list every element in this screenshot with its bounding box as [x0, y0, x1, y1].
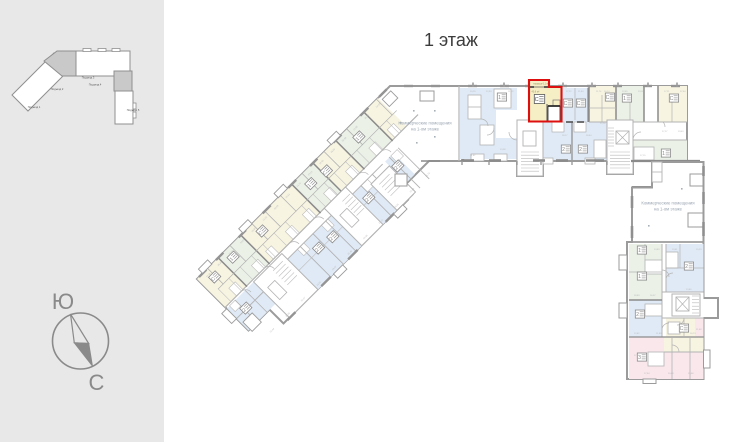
svg-text:2: 2 — [562, 147, 565, 153]
svg-text:27,27: 27,27 — [662, 131, 668, 133]
svg-text:12,44: 12,44 — [270, 328, 276, 334]
svg-text:13,83: 13,83 — [654, 249, 660, 251]
svg-text:2: 2 — [579, 147, 582, 153]
svg-text:13,80: 13,80 — [686, 289, 692, 291]
svg-text:28,83: 28,83 — [634, 295, 640, 297]
svg-text:С: С — [606, 95, 610, 101]
svg-text:1: 1 — [498, 95, 501, 101]
svg-text:11,82: 11,82 — [470, 155, 476, 157]
svg-text:21,84: 21,84 — [578, 91, 584, 93]
svg-text:13,38: 13,38 — [500, 149, 506, 151]
svg-text:28,17: 28,17 — [562, 135, 568, 137]
svg-text:27,22: 27,22 — [566, 91, 572, 93]
svg-text:терраса 6,1 м²: терраса 6,1 м² — [533, 83, 549, 86]
svg-text:Коммерческие помещения: Коммерческие помещения — [641, 201, 695, 206]
svg-text:1: 1 — [662, 151, 665, 157]
svg-text:1: 1 — [623, 96, 626, 102]
svg-text:на 1-ом этаже: на 1-ом этаже — [654, 207, 683, 212]
svg-text:1: 1 — [638, 274, 641, 280]
svg-text:С: С — [680, 326, 684, 332]
svg-text:40,6 м²: 40,6 м² — [532, 91, 540, 94]
svg-text:22,16: 22,16 — [600, 123, 606, 125]
svg-text:20,29: 20,29 — [470, 91, 476, 93]
svg-text:16,57: 16,57 — [650, 295, 656, 297]
svg-text:28,68: 28,68 — [688, 373, 694, 375]
svg-text:14,79: 14,79 — [640, 249, 646, 251]
svg-text:2: 2 — [636, 312, 639, 318]
svg-text:17,15: 17,15 — [640, 155, 646, 157]
svg-text:Коммерческие помещения: Коммерческие помещения — [398, 121, 452, 126]
svg-text:17,21: 17,21 — [664, 91, 670, 93]
svg-text:12,82: 12,82 — [634, 333, 640, 335]
svg-text:27,64: 27,64 — [644, 373, 650, 375]
svg-text:27,64: 27,64 — [680, 91, 686, 93]
svg-text:28,84: 28,84 — [586, 135, 592, 137]
svg-text:17,33: 17,33 — [634, 355, 640, 357]
svg-text:С: С — [577, 101, 581, 107]
svg-text:21,48: 21,48 — [696, 329, 702, 331]
svg-text:11,89: 11,89 — [656, 333, 662, 335]
svg-text:23,18: 23,18 — [638, 91, 644, 93]
svg-text:12,65: 12,65 — [622, 91, 628, 93]
svg-text:15,23: 15,23 — [696, 249, 702, 251]
svg-text:16,73: 16,73 — [690, 333, 696, 335]
svg-text:С: С — [535, 97, 539, 103]
svg-text:13,73: 13,73 — [425, 172, 431, 178]
svg-text:С: С — [564, 101, 568, 107]
svg-text:11,74: 11,74 — [596, 91, 602, 93]
svg-text:2: 2 — [685, 264, 688, 270]
svg-text:20,69: 20,69 — [668, 373, 674, 375]
svg-text:19,63: 19,63 — [678, 131, 684, 133]
svg-text:С: С — [670, 96, 674, 102]
svg-text:16,14: 16,14 — [604, 91, 610, 93]
svg-text:11,19: 11,19 — [508, 91, 514, 93]
svg-text:на 1-ом этаже: на 1-ом этаже — [411, 127, 440, 132]
svg-text:19,81: 19,81 — [672, 249, 678, 251]
svg-text:22,93: 22,93 — [486, 91, 492, 93]
